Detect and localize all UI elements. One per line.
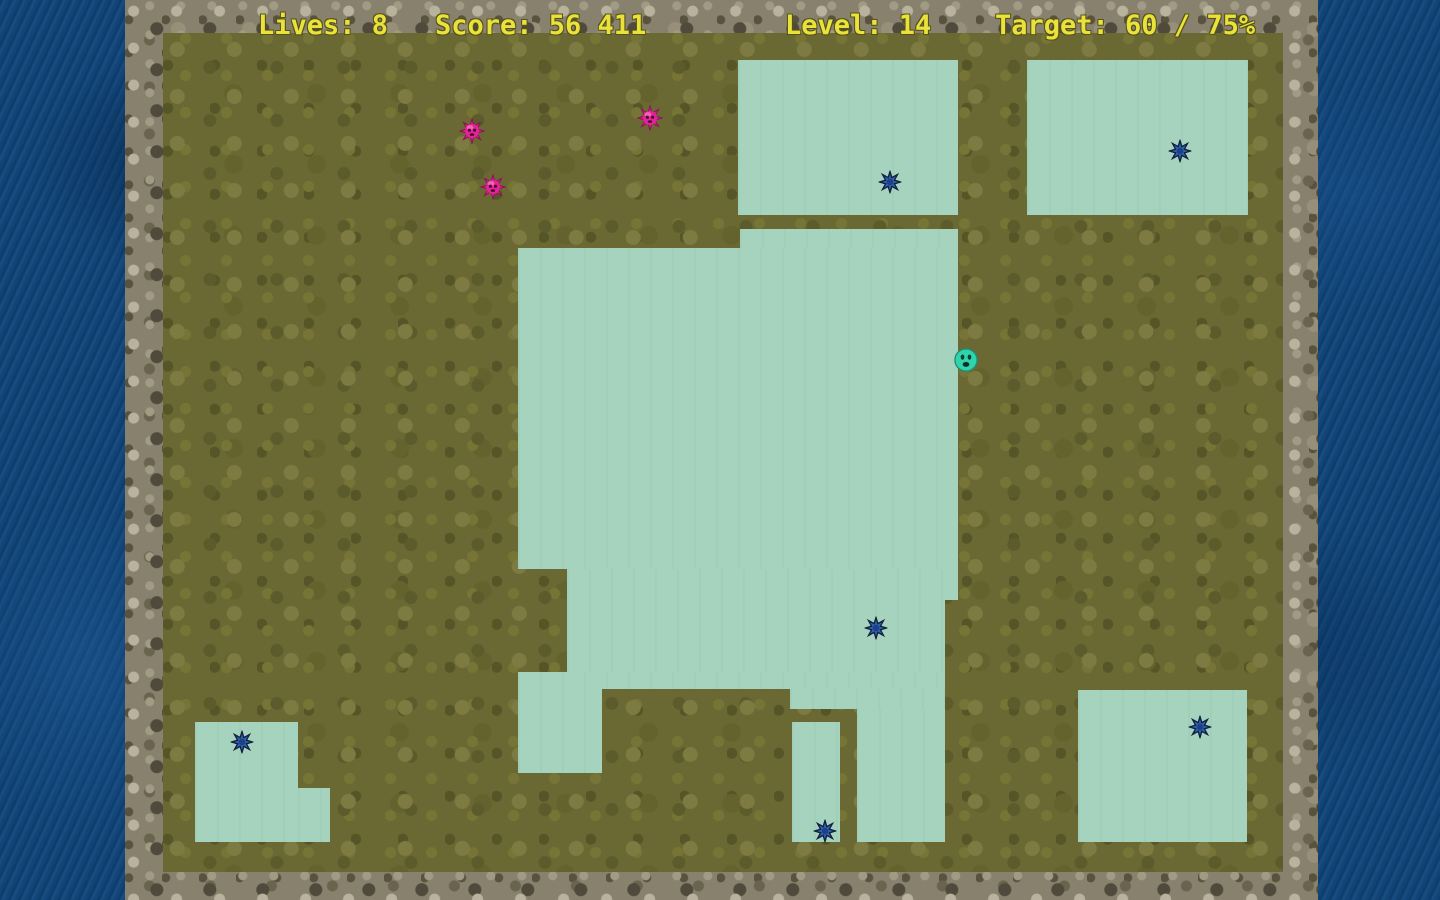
blue-spike-enemy: [865, 617, 888, 640]
hud-lives: Lives: 8: [258, 10, 388, 41]
claimed-region: [738, 60, 958, 215]
blue-spike-enemy: [231, 731, 254, 754]
hud-score: Score: 56 411: [435, 10, 646, 41]
pink-enemy: [637, 105, 663, 131]
pink-enemy: [459, 118, 485, 144]
pink-enemy: [480, 174, 506, 200]
game-screen: Lives: 8 Score: 56 411 Level: 14 Target:…: [0, 0, 1440, 900]
claimed-region: [567, 569, 958, 600]
claimed-region: [1027, 60, 1248, 215]
claimed-region: [518, 248, 958, 569]
claimed-region: [857, 709, 945, 842]
hud: Lives: 8 Score: 56 411 Level: 14 Target:…: [0, 0, 1440, 52]
claimed-region: [567, 600, 945, 672]
hud-level: Level: 14: [785, 10, 931, 41]
claimed-region: [740, 229, 958, 248]
blue-spike-enemy: [1189, 716, 1212, 739]
blue-spike-enemy: [879, 171, 902, 194]
claimed-region: [518, 672, 945, 689]
claimed-region: [790, 689, 945, 709]
blue-spike-enemy: [1169, 140, 1192, 163]
claimed-region: [518, 689, 602, 773]
claimed-region: [1078, 690, 1247, 842]
claimed-region: [298, 788, 330, 842]
player-character: [953, 347, 980, 374]
hud-target: Target: 60 / 75%: [995, 10, 1255, 41]
blue-spike-enemy: [814, 820, 837, 843]
